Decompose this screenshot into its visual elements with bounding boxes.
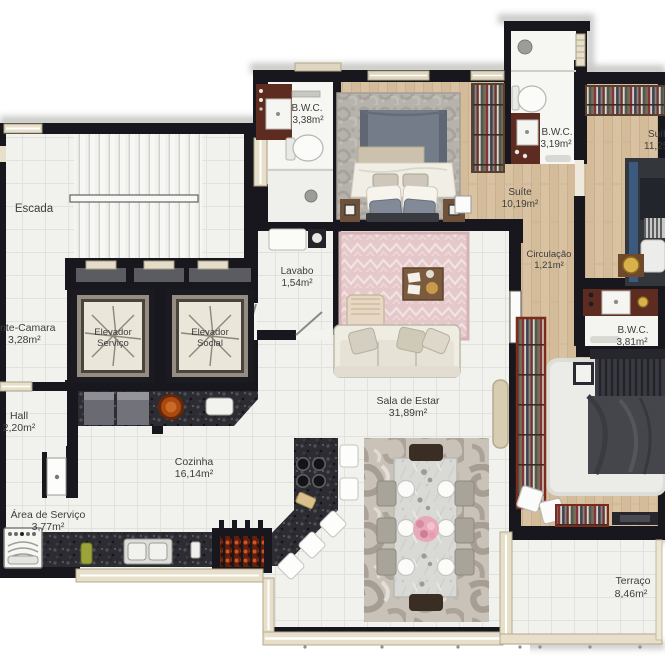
svg-text:3,38m²: 3,38m² [292, 115, 324, 126]
svg-text:Suíte: Suíte [648, 129, 665, 140]
svg-text:Social: Social [197, 338, 223, 349]
svg-text:Escada: Escada [15, 203, 54, 215]
svg-text:Serviço: Serviço [97, 338, 129, 349]
svg-text:16,14m²: 16,14m² [175, 468, 214, 480]
svg-text:Sala de Estar: Sala de Estar [376, 395, 440, 407]
svg-text:3,81m²: 3,81m² [616, 337, 648, 348]
svg-text:2,20m²: 2,20m² [3, 422, 36, 434]
svg-text:Hall: Hall [10, 410, 28, 422]
svg-text:B.W.C.: B.W.C. [291, 103, 322, 114]
svg-text:1,54m²: 1,54m² [281, 278, 313, 289]
svg-text:Circulação: Circulação [527, 249, 572, 260]
svg-text:Elevador: Elevador [94, 327, 132, 338]
svg-text:Lavabo: Lavabo [281, 266, 314, 277]
svg-text:Elevador: Elevador [191, 327, 229, 338]
svg-text:Cozinha: Cozinha [175, 456, 214, 468]
svg-text:11,25m²: 11,25m² [644, 141, 665, 152]
svg-text:1,21m²: 1,21m² [534, 260, 564, 271]
svg-text:10,19m²: 10,19m² [502, 199, 539, 210]
svg-text:3,77m²: 3,77m² [32, 521, 65, 533]
svg-text:Terraço: Terraço [615, 575, 650, 587]
svg-text:3,28m²: 3,28m² [8, 334, 41, 346]
svg-text:Área de Serviço: Área de Serviço [11, 508, 86, 521]
svg-text:B.W.C.: B.W.C. [617, 325, 648, 336]
svg-text:3,19m²: 3,19m² [540, 139, 572, 150]
svg-text:Suíte: Suíte [508, 187, 532, 198]
svg-text:B.W.C.: B.W.C. [541, 127, 572, 138]
svg-text:8,46m²: 8,46m² [615, 588, 648, 600]
svg-text:31,89m²: 31,89m² [389, 407, 428, 419]
svg-text:nte-Camara: nte-Camara [0, 322, 56, 334]
